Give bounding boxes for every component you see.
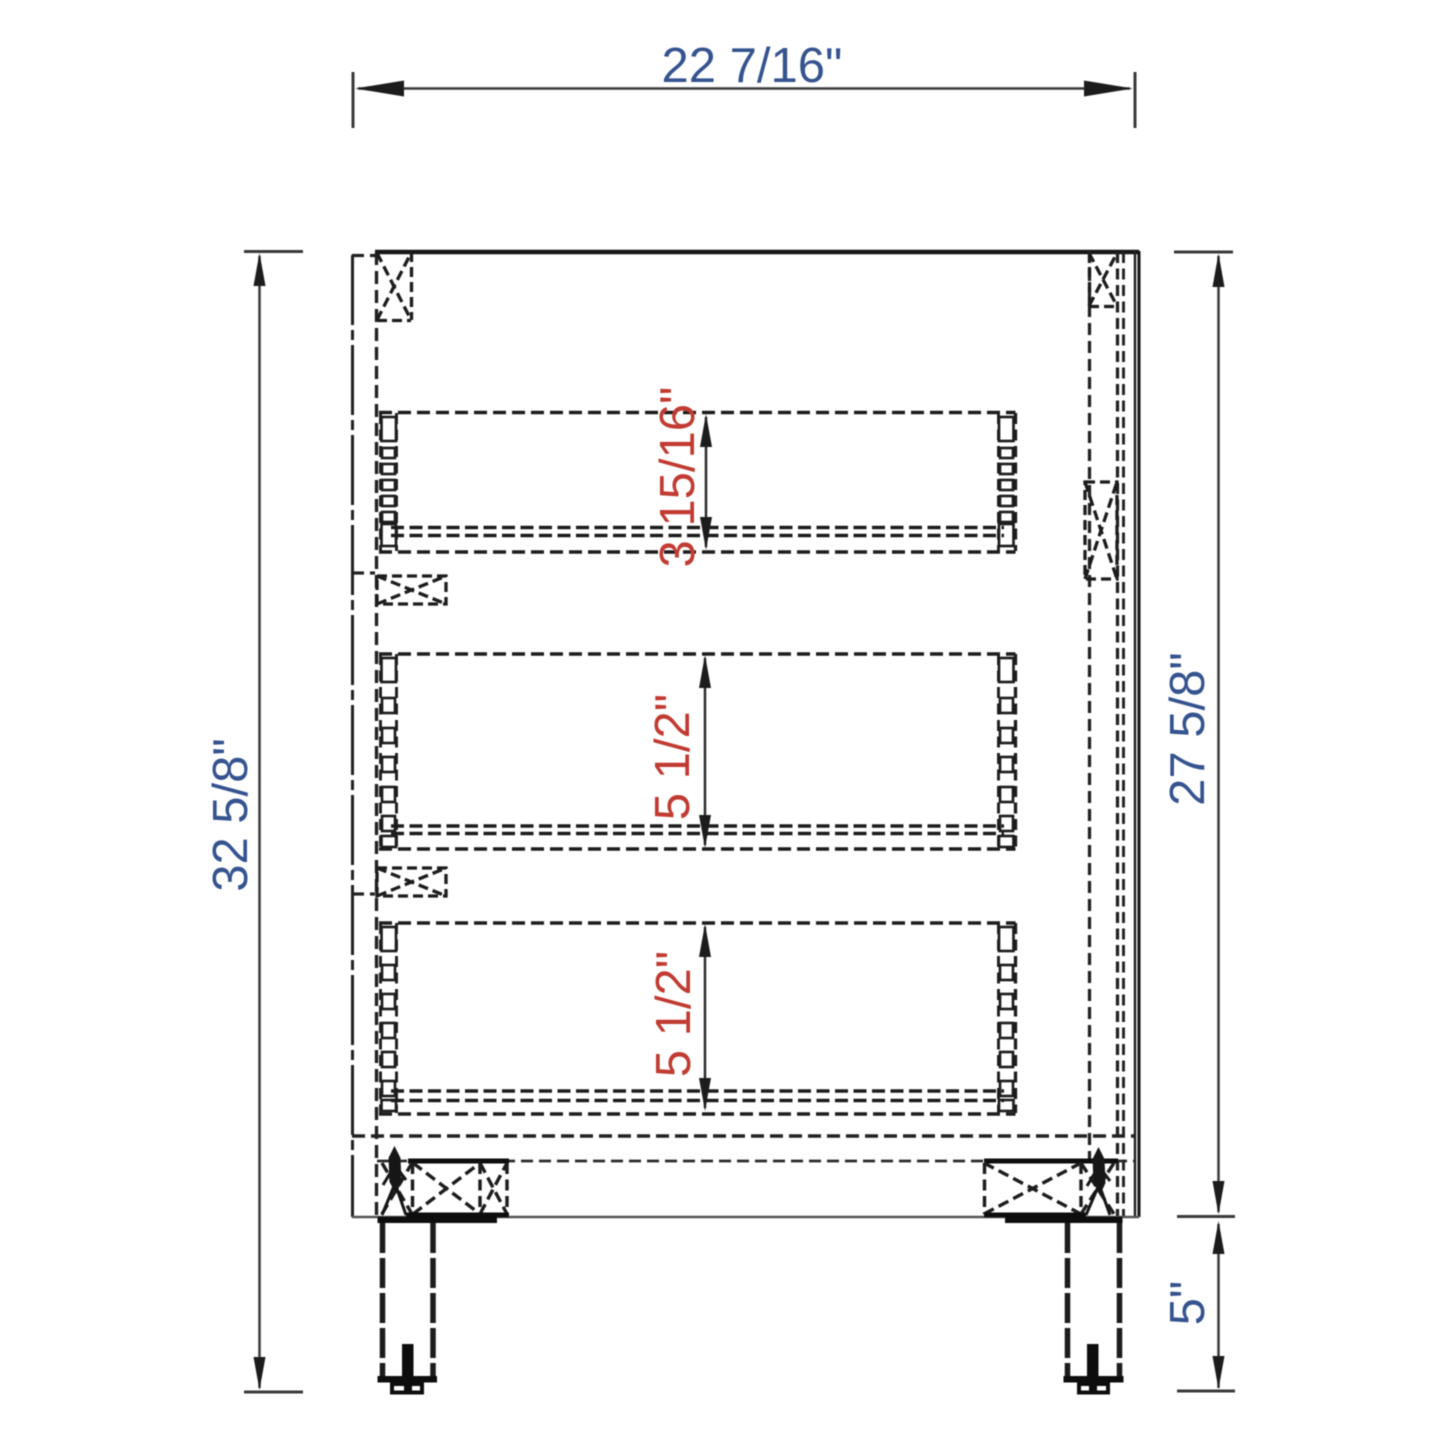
svg-text:5 1/2": 5 1/2": [646, 694, 700, 820]
svg-text:5 1/2": 5 1/2": [647, 951, 701, 1077]
svg-text:3 15/16": 3 15/16": [651, 387, 705, 568]
svg-text:5": 5": [1161, 1281, 1215, 1326]
svg-text:27 5/8": 27 5/8": [1161, 652, 1215, 806]
svg-text:32 5/8": 32 5/8": [204, 738, 258, 892]
svg-text:22 7/16": 22 7/16": [662, 39, 843, 93]
